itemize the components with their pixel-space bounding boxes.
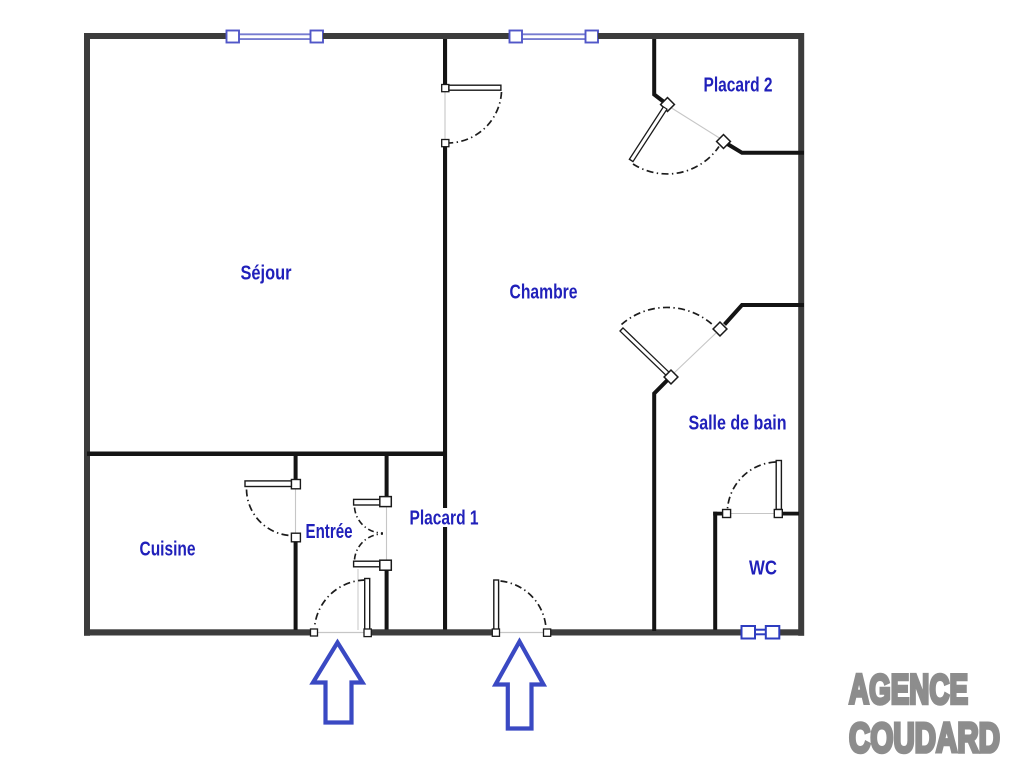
svg-text:WC: WC	[749, 558, 777, 580]
svg-text:COUDARD: COUDARD	[849, 714, 1000, 761]
svg-text:AGENCE: AGENCE	[849, 666, 968, 713]
svg-text:Salle de bain: Salle de bain	[689, 413, 787, 435]
svg-text:Placard 1: Placard 1	[410, 508, 479, 530]
svg-text:Cuisine: Cuisine	[140, 539, 196, 561]
svg-text:Chambre: Chambre	[510, 282, 578, 304]
svg-text:Entrée: Entrée	[306, 521, 353, 543]
svg-text:Séjour: Séjour	[241, 263, 292, 285]
svg-text:Placard 2: Placard 2	[704, 75, 773, 97]
